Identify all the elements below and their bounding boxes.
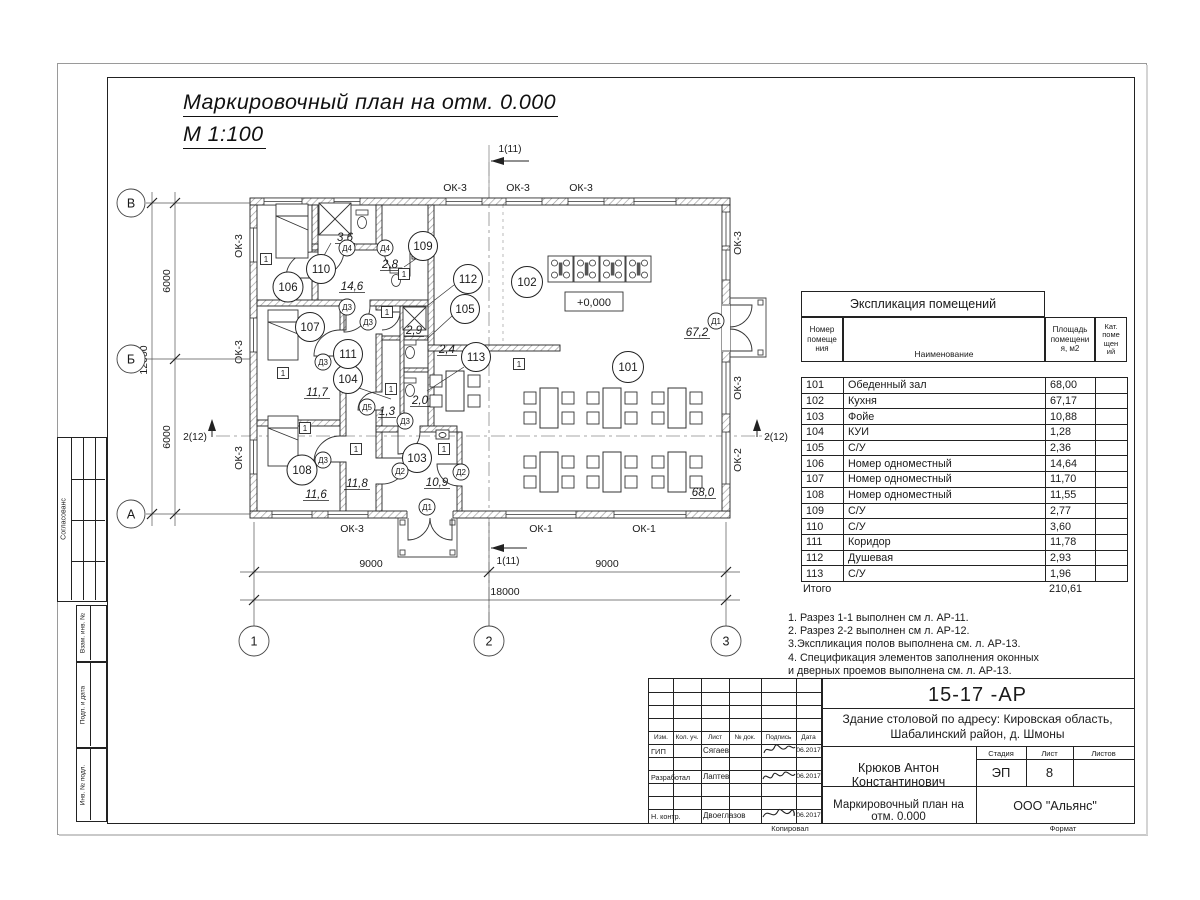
date-ncontrol: 06.2017 [796, 812, 821, 819]
door-tag-d3: Д3 [342, 303, 352, 312]
cell-name: КУИ [844, 425, 1046, 441]
kitchen-stoves [548, 256, 651, 282]
sheet-number: 8 [1026, 765, 1073, 780]
area-111: 11,8 [346, 478, 368, 490]
door-tag-d2: Д2 [395, 467, 405, 476]
area-108: 11,6 [305, 489, 327, 501]
note-line: 2. Разрез 2-2 выполнен см л. АР-12. [788, 625, 1133, 638]
room-label-102: 102 [517, 277, 536, 289]
note-line: и дверных проемов выполнена см. л. АР-13… [788, 665, 1133, 678]
dim-18000: 18000 [490, 586, 519, 598]
area-105: 2,4 [438, 344, 455, 356]
col-koluch: Кол. уч. [673, 734, 701, 741]
cell-num: 107 [802, 472, 844, 488]
sheets-label: Листов [1073, 749, 1134, 758]
signatures [761, 741, 796, 823]
marker-1: 1 [389, 385, 394, 394]
floor-plan-drawing: +0,000 101 102 103 104 105 106 107 108 1… [100, 130, 800, 690]
project-address-line2: Шабалинский район, д. Шмоны [821, 727, 1134, 741]
cell-cat [1096, 487, 1128, 503]
name-gip: Сягаев [703, 746, 761, 755]
col-izm: Изм. [649, 734, 673, 741]
cell-area: 2,93 [1046, 550, 1096, 566]
door-tag-d3: Д3 [318, 358, 328, 367]
room-label-110: 110 [312, 264, 330, 276]
cell-area: 3,60 [1046, 519, 1096, 535]
room-label-108: 108 [292, 465, 311, 477]
cell-cat [1096, 550, 1128, 566]
door-tag-d4: Д4 [342, 244, 352, 253]
dining-tables [430, 371, 702, 492]
col-header-number: Номер помеще ния [801, 317, 843, 362]
axis-2: 2 [486, 635, 493, 649]
side-label-inv: Инв. № подл. [80, 765, 87, 806]
cell-name: С/У [844, 566, 1046, 582]
side-label-podp: Подп. и дата [80, 686, 87, 724]
room-label-107: 107 [300, 322, 319, 334]
date-developer: 06.2017 [796, 773, 821, 780]
notes: 1. Разрез 1-1 выполнен см л. АР-11. 2. Р… [788, 612, 1133, 678]
cell-name: Номер одноместный [844, 487, 1046, 503]
cell-cat [1096, 425, 1128, 441]
room-label-105: 105 [455, 304, 474, 316]
window-label-ok3: ОК-3 [443, 182, 467, 194]
cell-num: 105 [802, 440, 844, 456]
table-row: 105С/У2,36 [802, 440, 1128, 456]
marker-1: 1 [354, 445, 359, 454]
area-109: 2,8 [381, 259, 399, 271]
dim-6000: 6000 [161, 425, 173, 449]
section-1-11: 1(11) [498, 144, 521, 155]
note-line: 3.Экспликация полов выполнена см. л. АР-… [788, 638, 1133, 651]
cell-cat [1096, 566, 1128, 582]
signature-developer [763, 772, 795, 779]
table-row: 101Обеденный зал68,00 [802, 378, 1128, 394]
table-row: 112Душевая2,93 [802, 550, 1128, 566]
cell-area: 1,96 [1046, 566, 1096, 582]
door-tag-d1: Д1 [422, 503, 432, 512]
title-block: 15-17 -АР Здание столовой по адресу: Кир… [648, 678, 1135, 824]
table-row: 107Номер одноместный11,70 [802, 472, 1128, 488]
area-107: 11,7 [306, 387, 328, 399]
room-label-112: 112 [459, 274, 477, 286]
area-102: 67,2 [686, 327, 709, 339]
signature-ncontrol [763, 809, 794, 817]
cell-num: 111 [802, 534, 844, 550]
section-2-12: 2(12) [764, 432, 788, 443]
table-row: 106Номер одноместный14,64 [802, 456, 1128, 472]
project-address-line1: Здание столовой по адресу: Кировская обл… [821, 712, 1134, 726]
window-label-ok3: ОК-3 [732, 376, 744, 400]
drawing-title-line1: Маркировочный план на отм. 0.000 [183, 90, 558, 117]
role-ncontrol: Н. контр. [651, 812, 701, 821]
level-mark: +0,000 [565, 292, 623, 311]
cell-name: С/У [844, 440, 1046, 456]
cell-num: 102 [802, 393, 844, 409]
copied-label: Копировал [760, 824, 820, 833]
window-label-ok3: ОК-3 [233, 234, 245, 258]
cell-num: 108 [802, 487, 844, 503]
cell-area: 11,55 [1046, 487, 1096, 503]
doc-number: 15-17 -АР [821, 682, 1134, 708]
area-106: 14,6 [341, 281, 364, 293]
note-line: 4. Спецификация элементов заполнения око… [788, 652, 1133, 665]
cell-name: Номер одноместный [844, 472, 1046, 488]
company-name: ООО "Альянс" [976, 799, 1134, 813]
sheet-name: Маркировочный план на отм. 0.000 [821, 799, 976, 823]
door-tag-d3: Д3 [400, 417, 410, 426]
signature-gip [764, 745, 795, 753]
marker-1: 1 [442, 445, 447, 454]
table-row: 110С/У3,60 [802, 519, 1128, 535]
axis-b: Б [127, 353, 135, 367]
table-row: 102Кухня67,17 [802, 393, 1128, 409]
cell-area: 11,78 [1046, 534, 1096, 550]
name-ncontrol: Двоеглазов [703, 811, 763, 820]
room-label-104: 104 [338, 374, 358, 386]
side-label-agreed: Согласованс [61, 498, 68, 540]
cell-num: 113 [802, 566, 844, 582]
cell-num: 104 [802, 425, 844, 441]
axis-v: В [127, 197, 135, 211]
role-developer: Разработал [651, 773, 701, 782]
axis-1: 1 [251, 635, 258, 649]
marker-1: 1 [402, 270, 407, 279]
cell-cat [1096, 472, 1128, 488]
room-label-101: 101 [618, 362, 637, 374]
room-label-113: 113 [467, 352, 485, 364]
dim-9000: 9000 [595, 558, 619, 570]
section-2-12: 2(12) [183, 432, 207, 443]
col-header-category: Кат. поме щен ий [1095, 317, 1127, 362]
cell-area: 1,28 [1046, 425, 1096, 441]
room-label-111: 111 [339, 349, 356, 361]
table-row: 109С/У2,77 [802, 503, 1128, 519]
col-list: Лист [701, 734, 729, 741]
axis-a: А [127, 508, 136, 522]
cell-name: Душевая [844, 550, 1046, 566]
cell-num: 110 [802, 519, 844, 535]
cell-area: 2,77 [1046, 503, 1096, 519]
cell-name: Номер одноместный [844, 456, 1046, 472]
drawing-sheet: Маркировочный план на отм. 0.000 М 1:100 [0, 0, 1200, 900]
dim-6000: 6000 [161, 269, 173, 293]
explication-total-row: Итого 210,61 [801, 583, 1127, 599]
sheet-shadow-right [1146, 65, 1148, 835]
cell-num: 109 [802, 503, 844, 519]
cell-area: 67,17 [1046, 393, 1096, 409]
cell-area: 2,36 [1046, 440, 1096, 456]
cell-name: С/У [844, 503, 1046, 519]
cell-cat [1096, 393, 1128, 409]
cell-num: 101 [802, 378, 844, 394]
door-tag-d4: Д4 [380, 244, 390, 253]
table-row: 103Фойе10,88 [802, 409, 1128, 425]
explication-title: Экспликация помещений [801, 291, 1045, 317]
author-name: Крюков Антон Константинович [821, 761, 976, 789]
col-header-name: Наименование [843, 317, 1045, 362]
window-label-ok3: ОК-3 [506, 182, 530, 194]
stage-label: Стадия [976, 749, 1026, 758]
area-113: 2,0 [411, 395, 429, 407]
stage-value: ЭП [976, 765, 1026, 780]
level-mark-value: +0,000 [577, 297, 611, 309]
dim-9000: 9000 [359, 558, 383, 570]
sheet-shadow-bottom [59, 834, 1148, 836]
side-label-vzam: Взам. инв. № [80, 613, 87, 653]
marker-1: 1 [264, 255, 269, 264]
cell-name: Фойе [844, 409, 1046, 425]
window-label-ok2: ОК-2 [732, 448, 744, 472]
cell-area: 10,88 [1046, 409, 1096, 425]
axis-3: 3 [723, 635, 730, 649]
area-103: 10,9 [426, 477, 449, 489]
window-label-ok3: ОК-3 [569, 182, 593, 194]
door-tag-d1: Д1 [711, 317, 721, 326]
cell-cat [1096, 519, 1128, 535]
door-tag-d3: Д3 [318, 456, 328, 465]
col-dok: № док. [729, 734, 761, 741]
cell-area: 14,64 [1046, 456, 1096, 472]
window-label-ok1: ОК-1 [529, 523, 553, 535]
cell-num: 106 [802, 456, 844, 472]
room-label-103: 103 [407, 453, 426, 465]
marker-1: 1 [517, 360, 522, 369]
room-label-109: 109 [413, 241, 432, 253]
window-label-ok1: ОК-1 [632, 523, 656, 535]
total-label: Итого [803, 583, 831, 595]
cell-name: С/У [844, 519, 1046, 535]
table-row: 108Номер одноместный11,55 [802, 487, 1128, 503]
cell-name: Обеденный зал [844, 378, 1046, 394]
marker-1: 1 [385, 308, 390, 317]
window-label-ok3: ОК-3 [233, 340, 245, 364]
cell-cat [1096, 378, 1128, 394]
table-row: 111Коридор11,78 [802, 534, 1128, 550]
explication-header-row: Номер помеще ния Наименование Площадь по… [801, 317, 1127, 362]
date-gip: 06.2017 [796, 747, 821, 754]
explication-rows: 101Обеденный зал68,00 102Кухня67,17 103Ф… [801, 377, 1128, 582]
sheet-label: Лист [1026, 749, 1073, 758]
cell-area: 11,70 [1046, 472, 1096, 488]
note-line: 1. Разрез 1-1 выполнен см л. АР-11. [788, 612, 1133, 625]
door-tag-d3: Д3 [363, 318, 373, 327]
door-tag-d2: Д2 [456, 468, 466, 477]
window-label-ok3: ОК-3 [233, 446, 245, 470]
door-tag-d5: Д5 [362, 403, 372, 412]
cell-cat [1096, 440, 1128, 456]
window-label-ok3: ОК-3 [340, 523, 364, 535]
cell-name: Кухня [844, 393, 1046, 409]
col-data: Дата [796, 734, 821, 741]
cell-cat [1096, 534, 1128, 550]
cell-name: Коридор [844, 534, 1046, 550]
cell-area: 68,00 [1046, 378, 1096, 394]
cell-cat [1096, 503, 1128, 519]
table-row: 113С/У1,96 [802, 566, 1128, 582]
col-podpis: Подпись [761, 734, 796, 741]
marker-1: 1 [303, 424, 308, 433]
area-101: 68,0 [692, 487, 715, 499]
total-value: 210,61 [1049, 583, 1082, 595]
area-104: 1,3 [379, 406, 396, 418]
section-1-11: 1(11) [496, 556, 519, 567]
table-row: 104КУИ1,28 [802, 425, 1128, 441]
room-label-106: 106 [278, 282, 297, 294]
role-gip: ГИП [651, 747, 701, 756]
col-header-area: Площадь помещени я, м2 [1045, 317, 1095, 362]
window-label-ok3: ОК-3 [732, 231, 744, 255]
cell-num: 112 [802, 550, 844, 566]
cell-cat [1096, 409, 1128, 425]
cell-num: 103 [802, 409, 844, 425]
marker-1: 1 [281, 369, 286, 378]
name-developer: Лаптев [703, 772, 761, 781]
format-label: Формат [1033, 824, 1093, 833]
cell-cat [1096, 456, 1128, 472]
area-112: 2,9 [405, 325, 423, 337]
